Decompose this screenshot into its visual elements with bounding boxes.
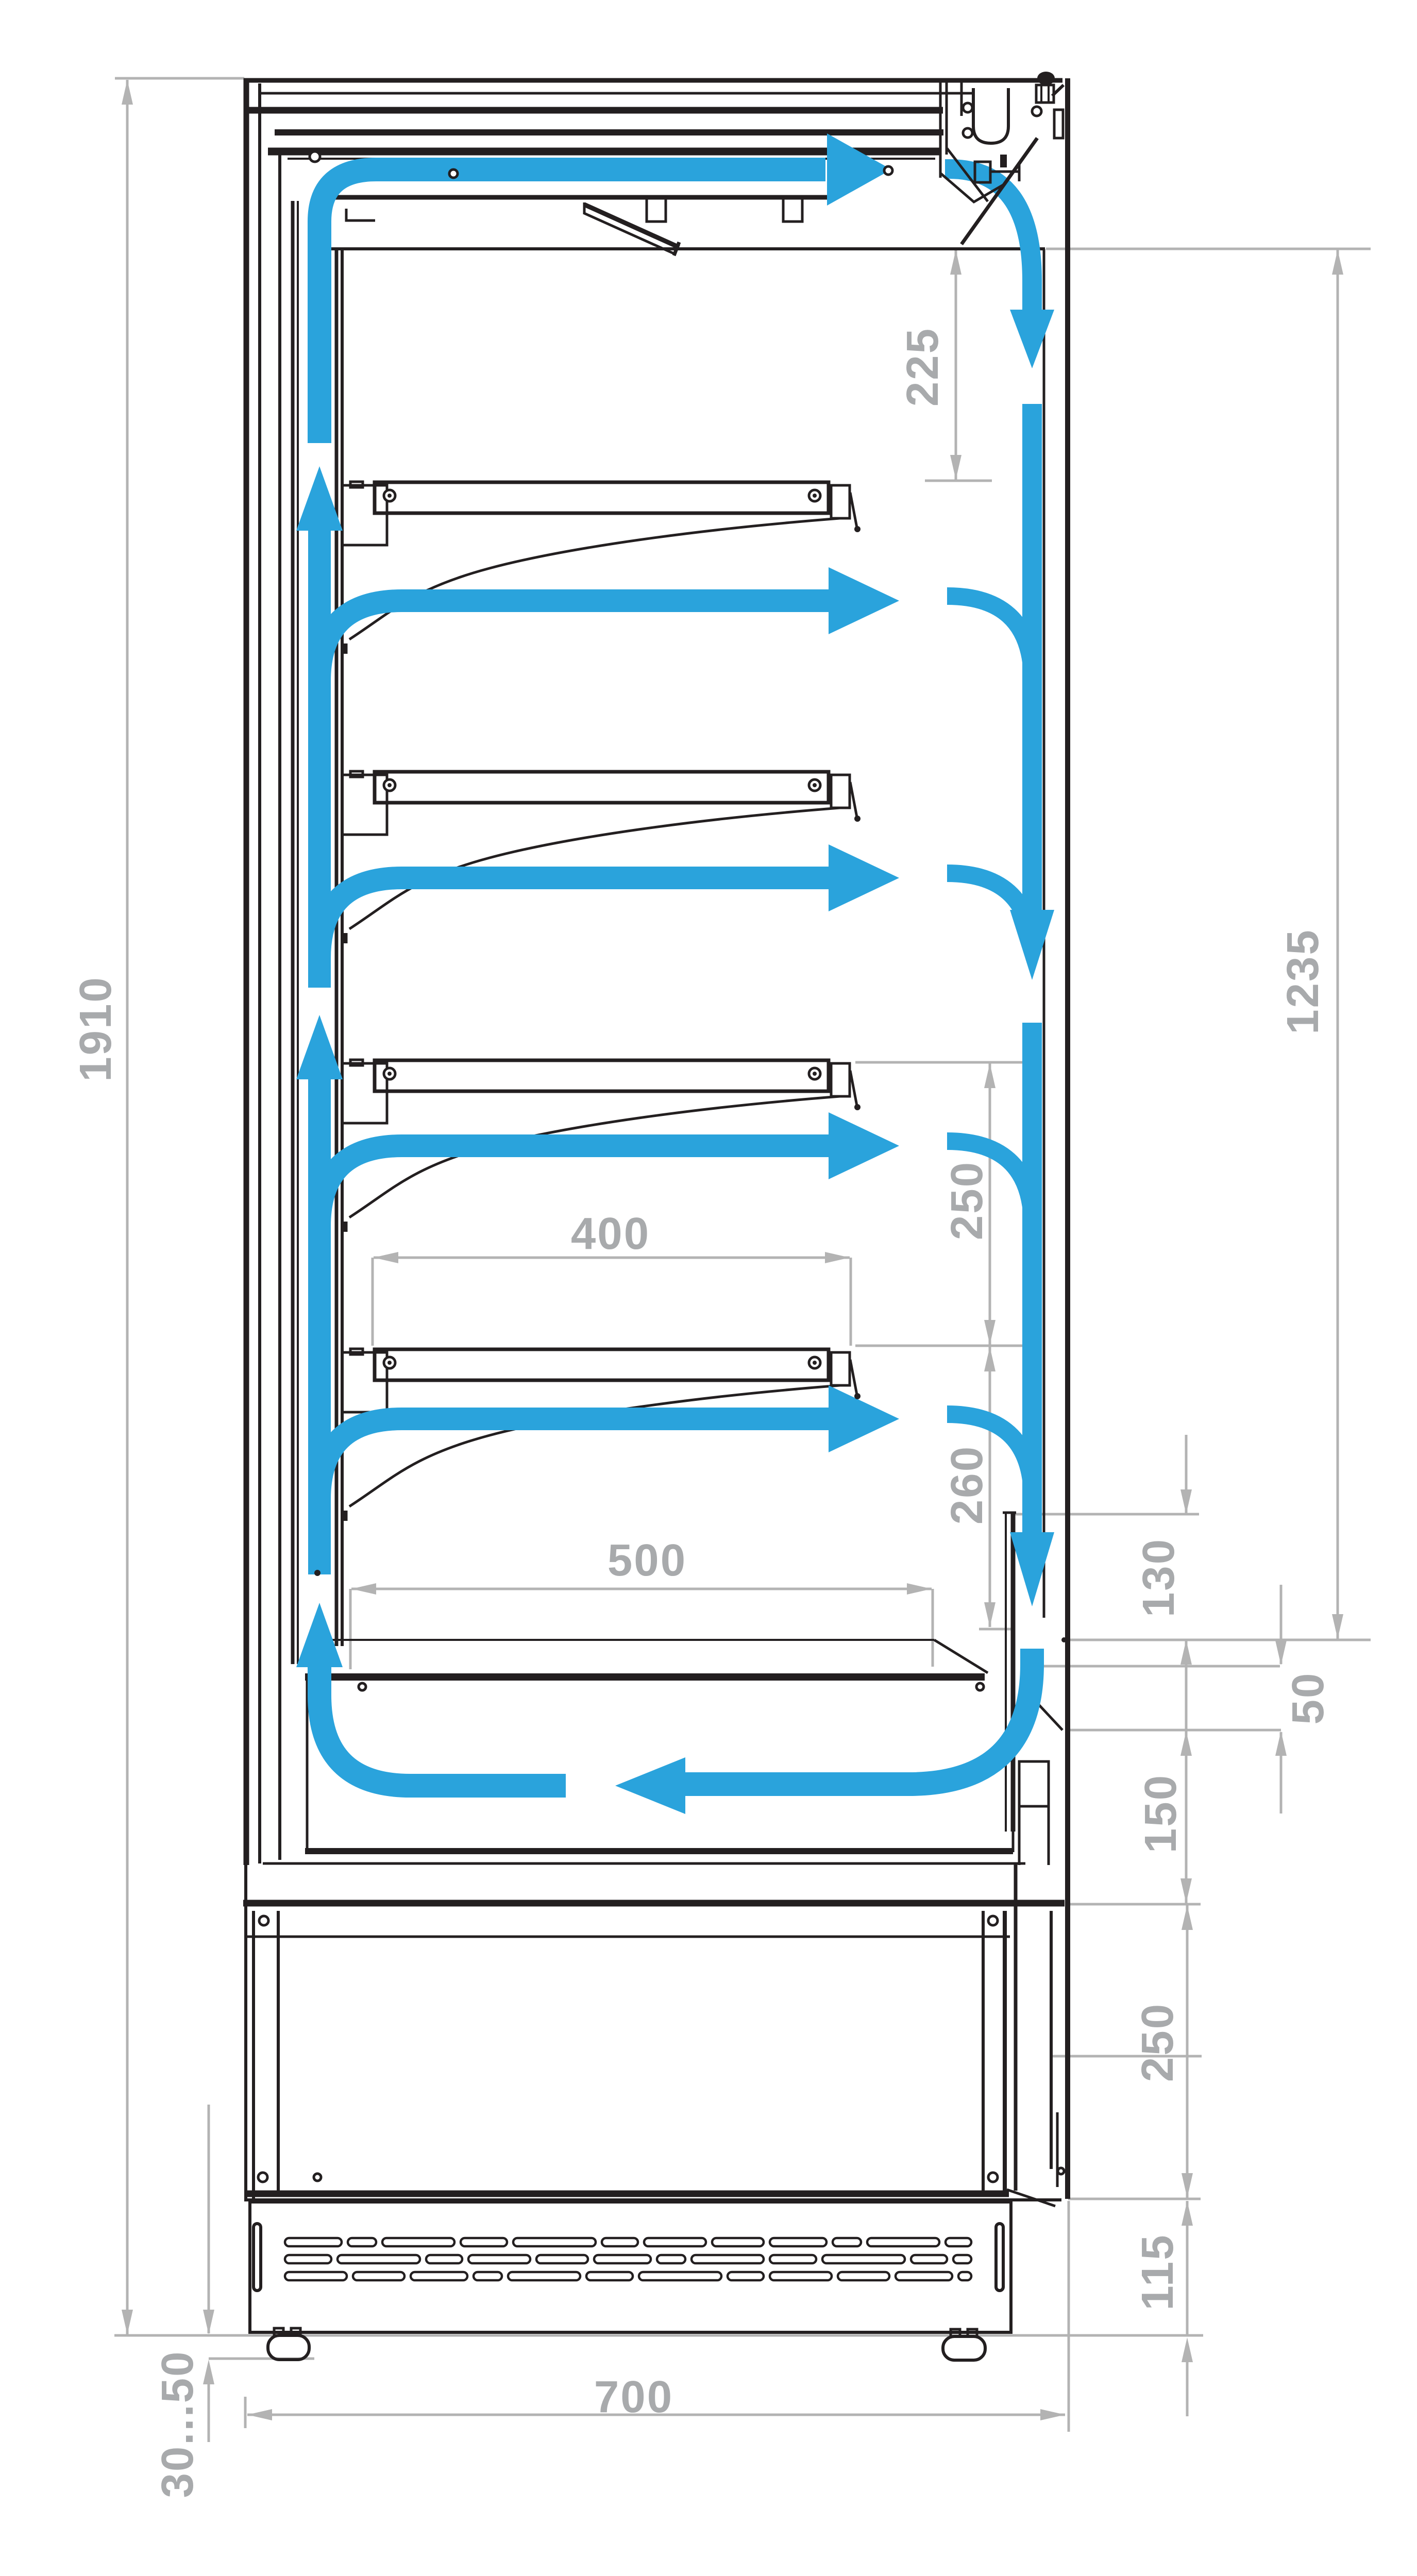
svg-text:700: 700	[594, 2372, 673, 2422]
svg-text:500: 500	[608, 1535, 687, 1585]
svg-text:1235: 1235	[1278, 928, 1328, 1035]
svg-text:250: 250	[1133, 2003, 1183, 2082]
svg-text:150: 150	[1136, 1774, 1186, 1853]
svg-text:1910: 1910	[71, 976, 121, 1082]
svg-text:260: 260	[942, 1445, 992, 1524]
svg-text:130: 130	[1134, 1538, 1184, 1617]
svg-text:400: 400	[571, 1209, 650, 1259]
svg-text:115: 115	[1133, 2233, 1183, 2310]
svg-text:50: 50	[1283, 1672, 1333, 1725]
svg-text:250: 250	[942, 1161, 992, 1240]
svg-text:225: 225	[898, 327, 948, 406]
svg-text:30...50: 30...50	[153, 2350, 203, 2498]
